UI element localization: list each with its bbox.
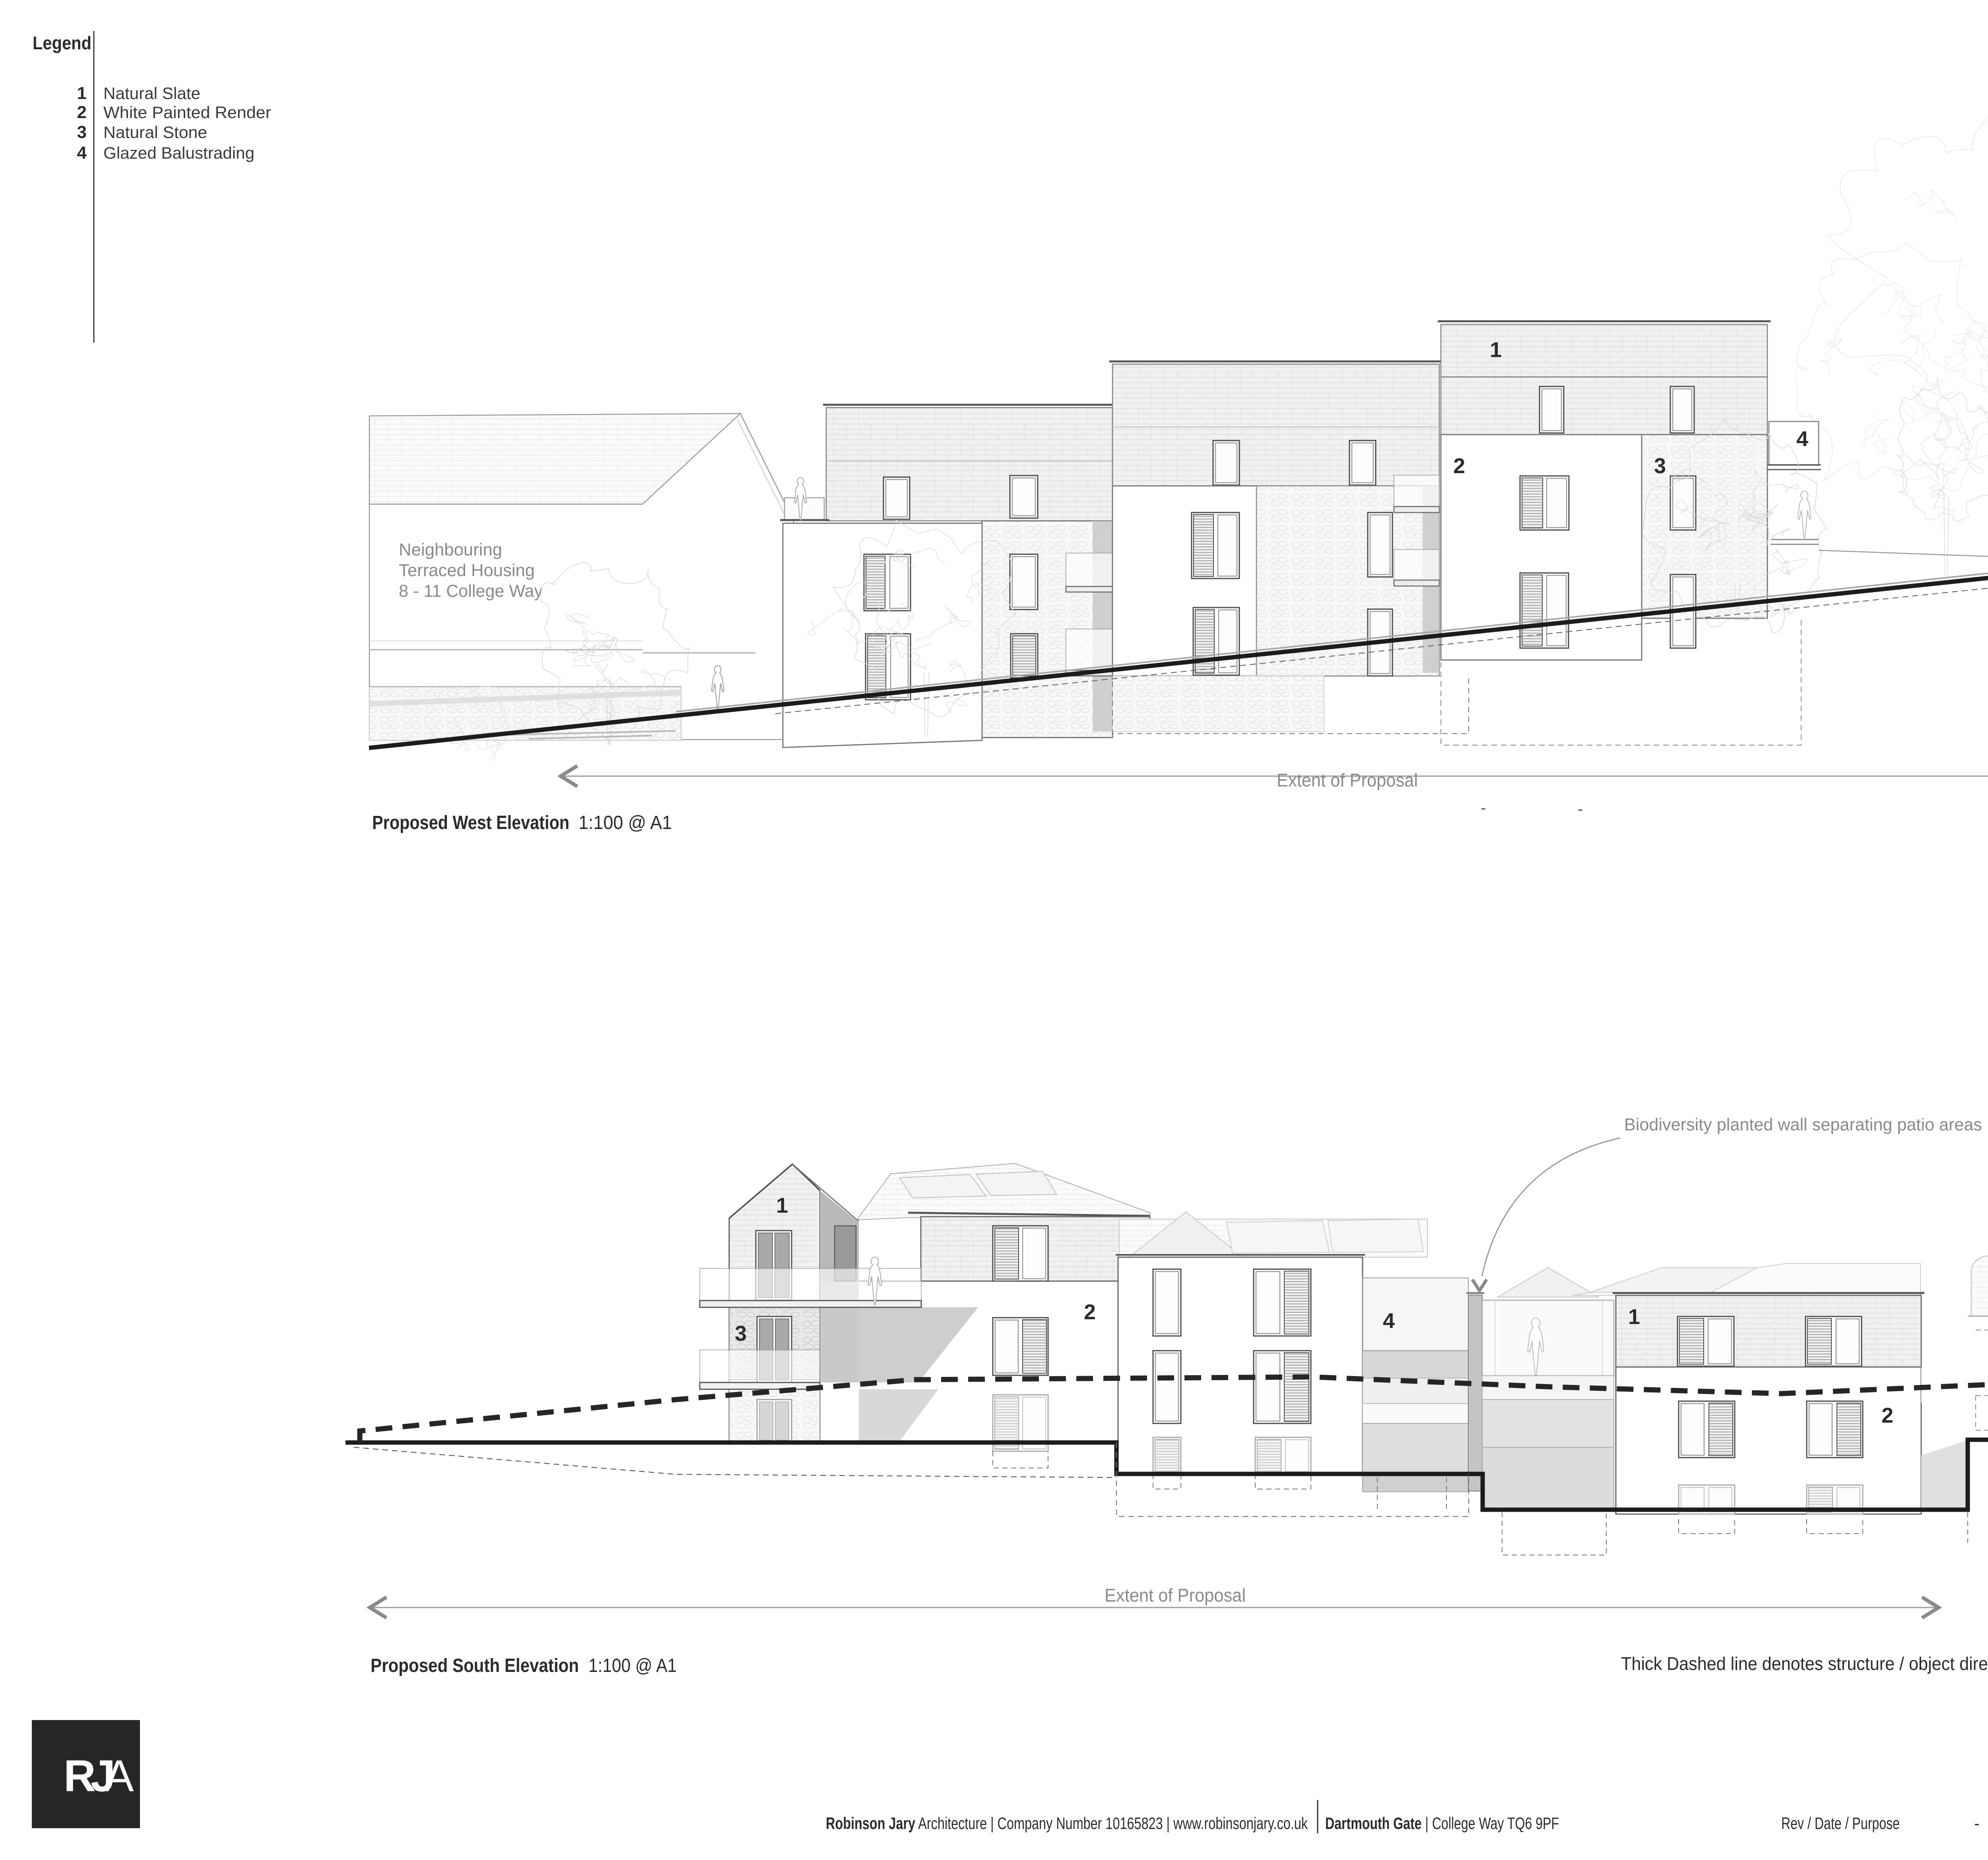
svg-text:1:100 @ A1: 1:100 @ A1 <box>579 812 672 833</box>
svg-text:2: 2 <box>77 103 87 122</box>
svg-text:Robinson Jary Architecture | C: Robinson Jary Architecture | Company Num… <box>826 1814 1308 1833</box>
svg-text:4: 4 <box>1383 1309 1395 1333</box>
svg-text:1: 1 <box>776 1194 788 1217</box>
svg-text:-: - <box>1481 799 1486 817</box>
svg-text:8 - 11 College Way: 8 - 11 College Way <box>399 581 543 601</box>
svg-text:Biodiversity planted wall sepa: Biodiversity planted wall separating pat… <box>1624 1115 1982 1134</box>
svg-text:1: 1 <box>1628 1305 1640 1329</box>
svg-text:2: 2 <box>1084 1300 1096 1324</box>
svg-text:4: 4 <box>1796 427 1808 451</box>
svg-text:1: 1 <box>1490 338 1502 362</box>
svg-text:Natural Slate: Natural Slate <box>103 84 200 103</box>
svg-text:Glazed Balustrading: Glazed Balustrading <box>103 144 254 162</box>
svg-text:2: 2 <box>1881 1404 1893 1427</box>
svg-text:1:100 @ A1: 1:100 @ A1 <box>588 1655 677 1676</box>
svg-text:Proposed West Elevation: Proposed West Elevation <box>372 812 569 833</box>
svg-text:Rev / Date / Purpose: Rev / Date / Purpose <box>1781 1814 1900 1833</box>
svg-text:Neighbouring: Neighbouring <box>399 540 502 559</box>
svg-text:Terraced Housing: Terraced Housing <box>399 561 535 580</box>
svg-text:Dartmouth Gate | College Way T: Dartmouth Gate | College Way TQ6 9PF <box>1325 1814 1559 1833</box>
svg-text:Extent of Proposal: Extent of Proposal <box>1277 770 1418 790</box>
svg-text:A: A <box>104 1751 134 1801</box>
svg-text:-: - <box>1974 1814 1980 1833</box>
svg-text:3: 3 <box>77 122 87 142</box>
svg-text:Proposed South Elevation: Proposed South Elevation <box>371 1655 579 1676</box>
svg-text:Legend: Legend <box>33 33 91 53</box>
svg-text:2: 2 <box>1453 454 1465 478</box>
svg-text:Extent of Proposal: Extent of Proposal <box>1105 1585 1246 1606</box>
svg-text:-: - <box>1578 800 1583 818</box>
svg-text:3: 3 <box>1654 454 1666 478</box>
svg-text:4: 4 <box>77 143 87 163</box>
svg-text:White Painted Render: White Painted Render <box>103 103 271 122</box>
svg-text:1: 1 <box>77 83 87 103</box>
svg-text:Natural Stone: Natural Stone <box>103 123 207 142</box>
svg-text:3: 3 <box>735 1322 747 1345</box>
svg-text:Thick Dashed line denotes stru: Thick Dashed line denotes structure / ob… <box>1621 1653 1988 1674</box>
